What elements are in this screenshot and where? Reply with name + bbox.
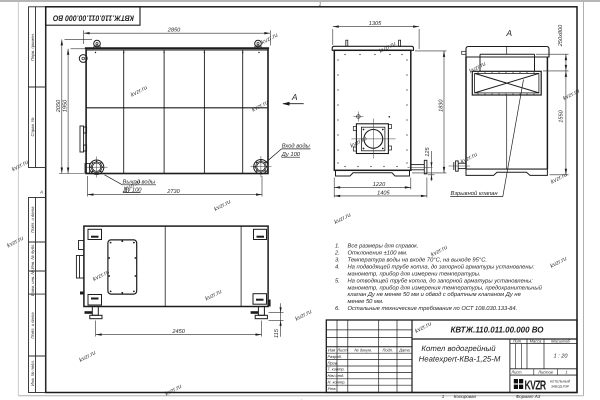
svg-text:Справ. №: Справ. № bbox=[30, 117, 35, 136]
svg-text:Разраб.: Разраб. bbox=[328, 354, 342, 359]
svg-text:На подводящей трубе котла, до: На подводящей трубе котла, до запорной а… bbox=[348, 263, 535, 270]
svg-text:Лист: Лист bbox=[510, 369, 522, 374]
svg-text:Инв. № подл.: Инв. № подл. bbox=[30, 360, 35, 386]
svg-text:Котел водогрейный: Котел водогрейный bbox=[421, 344, 496, 353]
svg-text:1.: 1. bbox=[335, 244, 340, 250]
svg-text:клапан Ду не менее 50 мм и обв: клапан Ду не менее 50 мм и обвод с обрат… bbox=[348, 291, 522, 298]
svg-text:ЗАВОД РЭР: ЗАВОД РЭР bbox=[551, 384, 570, 388]
svg-text:Листов: Листов bbox=[537, 369, 553, 374]
svg-text:Изм: Изм bbox=[328, 347, 336, 352]
svg-text:5.: 5. bbox=[335, 278, 340, 284]
svg-text:КВТЖ.110.011.00.000 ВО: КВТЖ.110.011.00.000 ВО bbox=[451, 324, 544, 334]
svg-text:6.: 6. bbox=[335, 305, 340, 312]
svg-text:4.: 4. bbox=[335, 264, 340, 270]
svg-text:Лист: Лист bbox=[336, 347, 348, 352]
svg-text:менее 50 мм.: менее 50 мм. bbox=[348, 298, 384, 305]
svg-text:Отклонения ±100 мм.: Отклонения ±100 мм. bbox=[348, 249, 408, 256]
svg-text:манометр, прибор для измерения: манометр, прибор для измерения температу… bbox=[348, 284, 543, 291]
svg-text:манометр, прибор для измерени: манометр, прибор для измерени температур… bbox=[348, 270, 481, 277]
svg-text:Перв. примен.: Перв. примен. bbox=[30, 33, 35, 61]
svg-text:Копировал: Копировал bbox=[454, 394, 477, 399]
svg-text:1550: 1550 bbox=[559, 109, 565, 122]
svg-text:1405: 1405 bbox=[377, 190, 390, 196]
svg-text:Все размеры для справок.: Все размеры для справок. bbox=[348, 243, 419, 250]
svg-text:Подп.: Подп. bbox=[382, 347, 393, 352]
svg-text:1: 1 bbox=[565, 369, 567, 374]
svg-text:Остальные технические требован: Остальные технические требования по ОСТ … bbox=[348, 305, 518, 312]
svg-text:1830: 1830 bbox=[438, 99, 444, 112]
svg-text:Дата: Дата bbox=[398, 347, 410, 352]
svg-text:Выход воды: Выход воды bbox=[123, 179, 156, 186]
svg-text:Вход воды: Вход воды bbox=[282, 143, 311, 150]
svg-text:КОТЕЛЬНЫЙ: КОТЕЛЬНЫЙ bbox=[550, 379, 571, 383]
svg-text:250х800: 250х800 bbox=[558, 24, 564, 47]
svg-text:Температура воды на входе 70°С: Температура воды на входе 70°С, на выход… bbox=[348, 256, 488, 263]
svg-text:Ду 100: Ду 100 bbox=[281, 151, 301, 158]
svg-text:1950: 1950 bbox=[63, 99, 69, 112]
svg-text:Подп. и дата: Подп. и дата bbox=[30, 312, 35, 339]
svg-text:Т. контр.: Т. контр. bbox=[328, 367, 345, 372]
svg-text:Лит.: Лит. bbox=[512, 339, 522, 344]
svg-text:Нач.отд.: Нач.отд. bbox=[328, 373, 345, 378]
svg-text:125: 125 bbox=[425, 147, 431, 157]
svg-text:Ду 100: Ду 100 bbox=[122, 186, 142, 193]
svg-text:КВТЖ.110.011.00.000 ВО: КВТЖ.110.011.00.000 ВО bbox=[52, 14, 134, 23]
svg-text:А: А bbox=[39, 190, 43, 195]
svg-text:2.: 2. bbox=[334, 249, 340, 256]
svg-text:2850: 2850 bbox=[167, 28, 181, 34]
svg-text:KVZR: KVZR bbox=[525, 377, 547, 392]
svg-text:Формат А3: Формат А3 bbox=[516, 394, 541, 399]
svg-text:2450: 2450 bbox=[171, 329, 185, 335]
svg-text:Пров.: Пров. bbox=[328, 360, 339, 365]
svg-text:Масштаб: Масштаб bbox=[551, 339, 570, 344]
svg-text:Взам. инв. №: Взам. инв. № bbox=[30, 270, 35, 296]
svg-text:115: 115 bbox=[274, 328, 280, 338]
svg-text:3.: 3. bbox=[335, 256, 340, 263]
svg-text:Heatexpert-КВа-1,25-М: Heatexpert-КВа-1,25-М bbox=[419, 355, 501, 364]
svg-text:Подп. и дата: Подп. и дата bbox=[30, 206, 35, 233]
svg-text:А: А bbox=[505, 28, 512, 38]
svg-text:№ докум.: № докум. bbox=[354, 347, 372, 352]
svg-text:Н. контр.: Н. контр. bbox=[328, 380, 346, 385]
svg-text:2730: 2730 bbox=[166, 189, 180, 195]
svg-text:1220: 1220 bbox=[373, 182, 386, 188]
svg-text:Инв. № дубл.: Инв. № дубл. bbox=[30, 244, 35, 270]
svg-text:1 : 20: 1 : 20 bbox=[554, 353, 569, 359]
svg-text:На отводящей трубе котла, до з: На отводящей трубе котла, до запорной ар… bbox=[348, 277, 534, 284]
svg-text:Утв.: Утв. bbox=[328, 386, 337, 391]
svg-text:2050: 2050 bbox=[56, 99, 62, 113]
svg-text:Масса: Масса bbox=[530, 339, 543, 344]
svg-text:А: А bbox=[291, 92, 298, 102]
svg-text:1305: 1305 bbox=[369, 21, 382, 27]
svg-text:Взрывной клапан: Взрывной клапан bbox=[451, 190, 499, 197]
